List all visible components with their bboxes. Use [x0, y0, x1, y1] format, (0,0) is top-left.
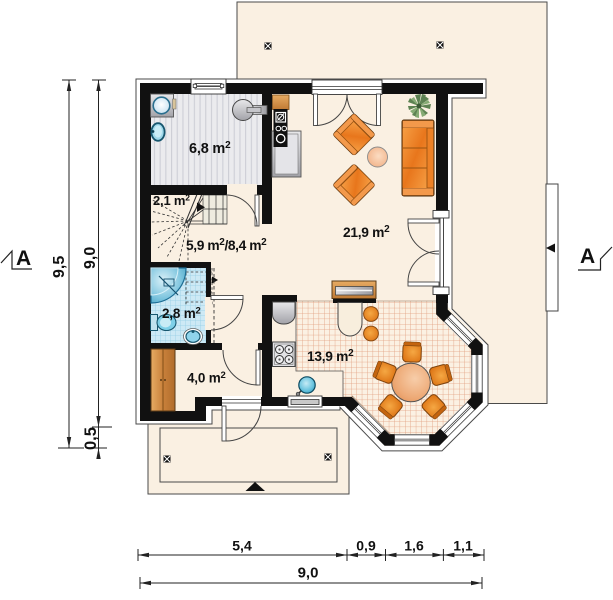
- svg-text:A: A: [16, 247, 31, 270]
- svg-text:13,9 m2: 13,9 m2: [307, 348, 354, 364]
- svg-text:A: A: [580, 245, 595, 268]
- svg-text:5,4: 5,4: [232, 538, 252, 554]
- svg-text:5,9 m2/8,4 m2: 5,9 m2/8,4 m2: [186, 237, 267, 253]
- svg-text:6,8 m2: 6,8 m2: [189, 140, 231, 157]
- svg-text:1,1: 1,1: [453, 538, 473, 554]
- svg-text:1,6: 1,6: [404, 538, 424, 554]
- svg-text:4,0 m2: 4,0 m2: [187, 370, 226, 386]
- svg-text:0,9: 0,9: [356, 538, 376, 554]
- svg-text:2,1 m2: 2,1 m2: [153, 193, 190, 209]
- svg-text:0,5: 0,5: [82, 427, 100, 450]
- svg-text:21,9 m2: 21,9 m2: [343, 224, 390, 240]
- svg-text:9,5: 9,5: [51, 256, 68, 278]
- svg-text:9,0: 9,0: [82, 247, 99, 269]
- svg-text:2,8 m2: 2,8 m2: [162, 306, 201, 322]
- svg-text:9,0: 9,0: [298, 565, 319, 582]
